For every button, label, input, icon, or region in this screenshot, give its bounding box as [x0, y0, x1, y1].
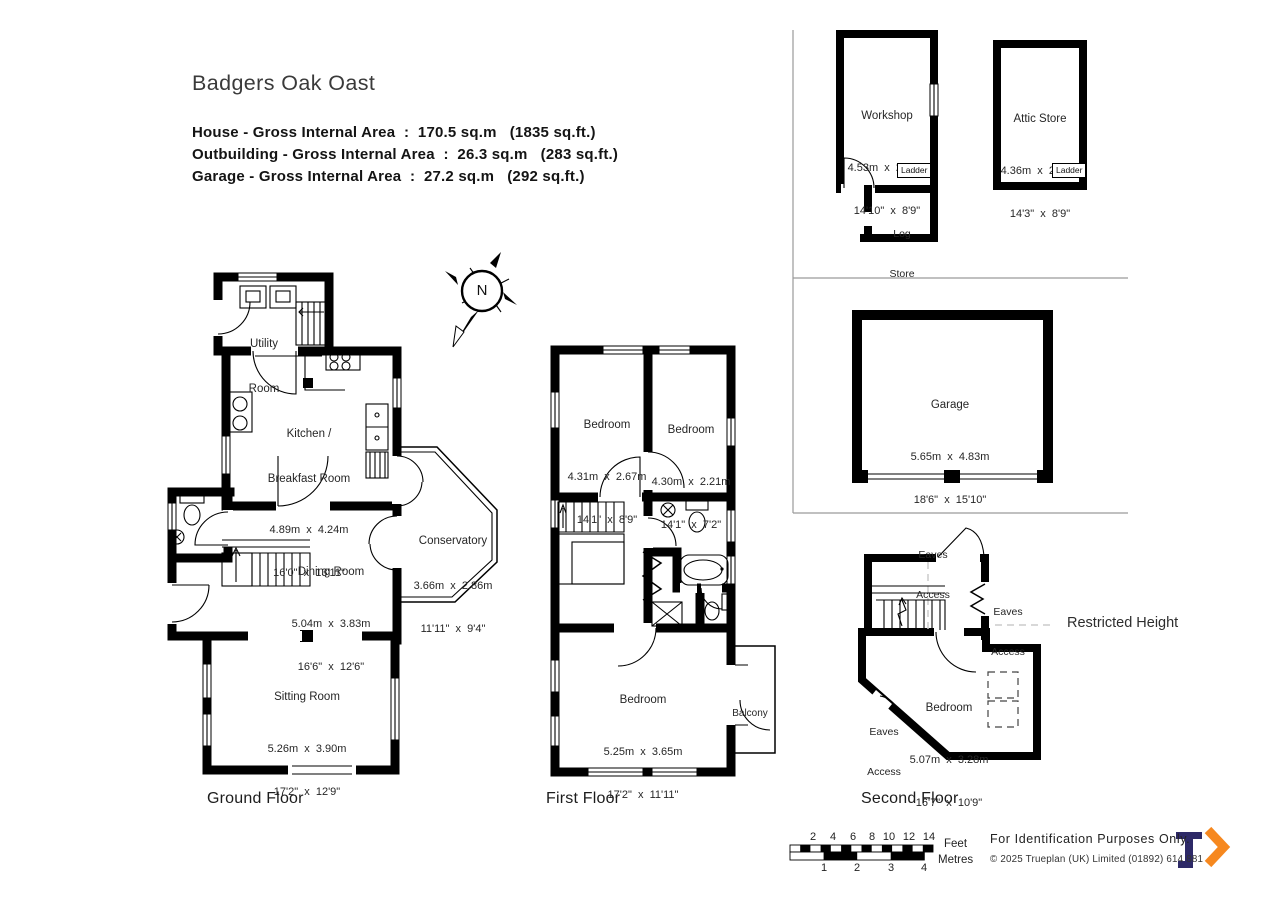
scale-feet-tick: 8: [869, 831, 875, 843]
floorplan-page: Badgers Oak Oast House - Gross Internal …: [0, 0, 1280, 905]
copyright-note: © 2025 Trueplan (UK) Limited (01892) 614…: [990, 854, 1203, 865]
room-label-conservatory: Conservatory 3.66m x 2.86m 11'11" x 9'4": [414, 505, 493, 666]
scale-feet-unit-label: Feet: [944, 838, 967, 850]
area-outbuilding: Outbuilding - Gross Internal Area : 26.3…: [192, 146, 618, 163]
area-house: House - Gross Internal Area : 170.5 sq.m…: [192, 124, 596, 141]
scale-metre-tick: 3: [888, 862, 894, 874]
page-title: Badgers Oak Oast: [192, 71, 375, 96]
compass-icon: [445, 252, 517, 347]
first-floor-caption: First Floor: [546, 790, 620, 808]
restricted-height-label: Restricted Height: [1067, 615, 1178, 631]
eaves-access-top-label: Eaves Access: [916, 522, 950, 630]
room-label-bedroom4: Bedroom 5.07m x 3.28m 16'7" x 10'9": [910, 672, 989, 840]
scale-feet-tick: 14: [923, 831, 935, 843]
area-garage: Garage - Gross Internal Area : 27.2 sq.m…: [192, 168, 585, 185]
ground-floor-caption: Ground Floor: [207, 790, 304, 808]
eaves-access-right-label: Eaves Access: [991, 579, 1025, 687]
second-floor-caption: Second Floor: [861, 790, 959, 808]
scale-metre-tick: 2: [854, 862, 860, 874]
logo-bracket-icon: [1208, 830, 1224, 864]
room-label-log-store: Log Store: [889, 201, 914, 309]
room-label-bedroom2: Bedroom 4.30m x 2.21m 14'1" x 7'2": [652, 394, 731, 562]
scale-metre-tick: 1: [821, 862, 827, 874]
scale-metres-unit-label: Metres: [938, 854, 973, 866]
scale-feet-tick: 6: [850, 831, 856, 843]
scale-feet-tick: 4: [830, 831, 836, 843]
room-label-bedroom1: Bedroom 4.31m x 2.67m 14'1" x 8'9": [568, 389, 647, 557]
scale-metre-tick: 4: [921, 862, 927, 874]
identification-note: For Identification Purposes Only.: [990, 832, 1190, 846]
scale-feet-tick: 12: [903, 831, 915, 843]
room-label-garage: Garage 5.65m x 4.83m 18'6" x 15'10": [911, 369, 990, 537]
ladder-label-workshop: Ladder: [897, 163, 931, 178]
ladder-label-attic: Ladder: [1052, 163, 1086, 178]
scale-bar: [790, 845, 933, 860]
scale-feet-tick: 10: [883, 831, 895, 843]
compass-north-label: N: [477, 282, 488, 299]
room-label-balcony: Balcony: [732, 682, 768, 746]
scale-feet-tick: 2: [810, 831, 816, 843]
